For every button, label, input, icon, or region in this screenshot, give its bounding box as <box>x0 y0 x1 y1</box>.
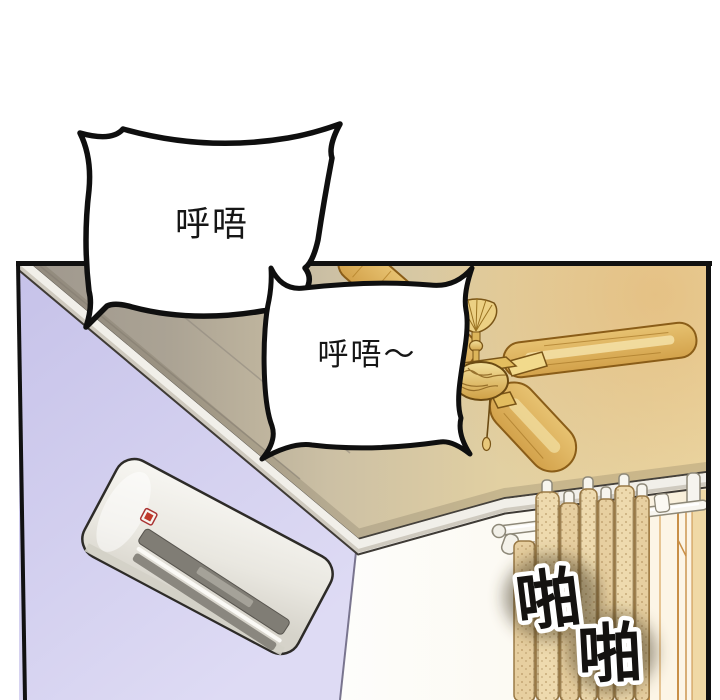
speech-bubble-2-text: 呼唔～ <box>318 337 417 373</box>
window-frame <box>645 490 712 700</box>
fan-downrod <box>472 332 480 341</box>
fan-chain-weight <box>483 438 491 451</box>
comic-panel-scene: 啪 啪 呼唔 呼唔～ <box>0 0 720 700</box>
speech-bubble-2: 呼唔～ <box>262 268 472 459</box>
speech-bubble-1-text: 呼唔 <box>175 205 249 245</box>
comic-page: 啪 啪 呼唔 呼唔～ <box>0 0 720 700</box>
rod-joint <box>654 493 670 513</box>
sfx-text-1: 啪 <box>512 561 585 642</box>
sfx-text-2: 啪 <box>576 616 644 693</box>
rod-end-cap <box>493 525 506 538</box>
